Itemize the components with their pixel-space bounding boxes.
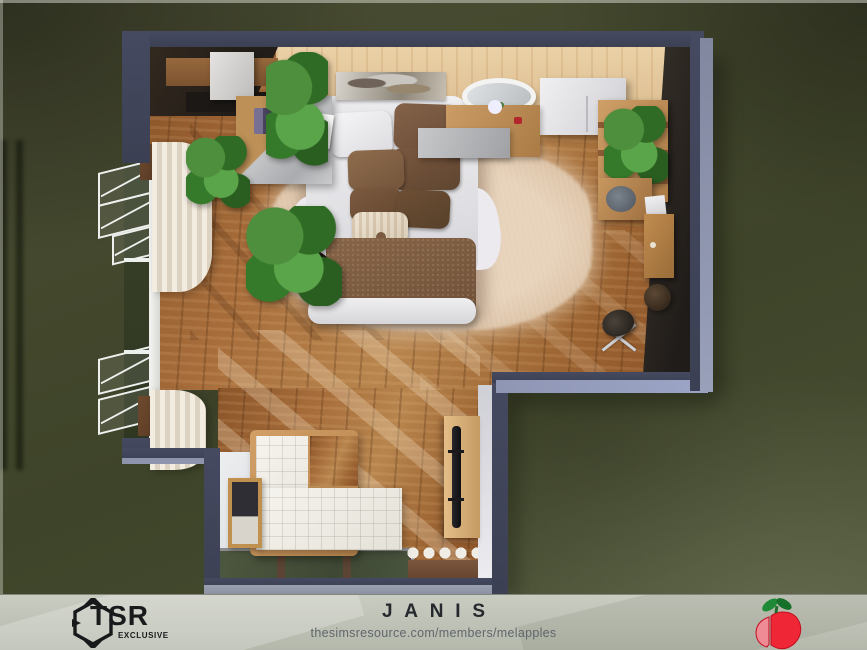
abstract-wall-art bbox=[336, 72, 446, 100]
wall-top bbox=[136, 31, 704, 47]
bed-pillow-brown bbox=[347, 149, 404, 191]
leaning-framed-art bbox=[228, 478, 262, 548]
desk-printer bbox=[210, 52, 254, 100]
wall-cabinet-right bbox=[644, 214, 674, 278]
image-frame-top bbox=[0, 0, 867, 3]
notch-interior-wall bbox=[478, 385, 492, 578]
round-basket bbox=[644, 284, 671, 311]
wall-notch-vertical bbox=[492, 372, 508, 594]
sofa-chaise bbox=[256, 488, 402, 550]
tree-shadow-left bbox=[0, 140, 28, 470]
concrete-bench bbox=[418, 128, 510, 158]
hanging-plant bbox=[266, 52, 328, 170]
monstera-plant bbox=[246, 206, 342, 306]
tv-console bbox=[444, 416, 480, 538]
melapples-apple-icon bbox=[752, 596, 804, 650]
creator-url: thesimsresource.com/members/melapples bbox=[0, 626, 867, 640]
planter-white-plants bbox=[404, 543, 482, 565]
vase-with-flower bbox=[488, 100, 502, 114]
room-render-canvas: TSR EXCLUSIVE JANIS thesimsresource.com/… bbox=[0, 0, 867, 650]
wall-right-face bbox=[700, 38, 713, 392]
wall-left-upper bbox=[122, 31, 150, 163]
tv-screen bbox=[452, 426, 461, 528]
red-alarm-clock bbox=[514, 117, 522, 124]
image-frame-left bbox=[0, 0, 3, 650]
wall-notch-face bbox=[496, 380, 708, 393]
sofa-corner-floor bbox=[310, 436, 358, 486]
build-title: JANIS bbox=[0, 601, 867, 623]
window-plant bbox=[186, 136, 250, 208]
wall-left-lower bbox=[204, 448, 220, 594]
ladder-plants bbox=[604, 106, 668, 184]
